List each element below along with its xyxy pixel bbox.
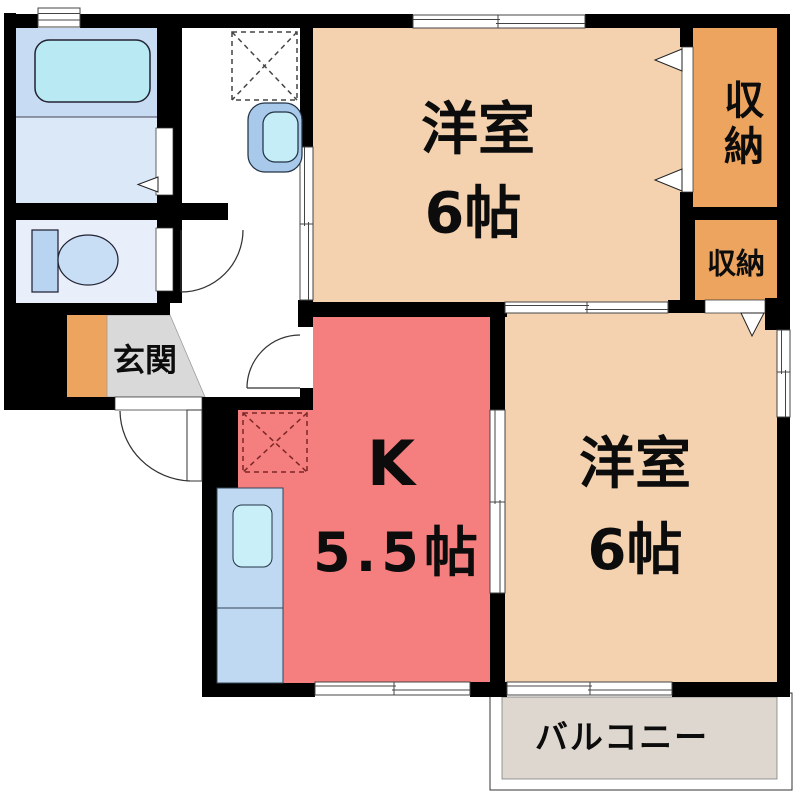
- wall-kitchen-corner-block: [217, 410, 238, 488]
- entrance-step: [115, 397, 202, 410]
- wall-kitchen-room2-a: [490, 313, 505, 410]
- bathtub-icon: [35, 40, 150, 102]
- wall-hall-east-mid: [298, 300, 313, 327]
- wall-hall-east-lower: [300, 388, 313, 410]
- floorplan: 洋室 6帖 洋室 6帖 K 5.5帖 収納 収納 玄関 バルコニー: [0, 0, 800, 800]
- wall-top-b: [80, 14, 413, 28]
- western-room-2-label: 洋室: [579, 437, 691, 493]
- hall-room1-sliding-door: [300, 147, 313, 300]
- washroom-floor: [16, 117, 157, 203]
- storage-lower-label: 収納: [707, 250, 765, 279]
- room2-right-window: [777, 330, 790, 417]
- wall-washroom-bottom: [16, 203, 228, 220]
- wall-entrance-left-block: [16, 303, 67, 410]
- wall-toilet-bottom: [67, 303, 170, 315]
- wall-kitchen-top: [313, 302, 507, 317]
- entrance-door: [115, 397, 202, 481]
- wall-right-corner-block: [765, 298, 790, 330]
- wall-entrance-bottom-b: [202, 397, 313, 410]
- wall-kitchen-left: [202, 410, 217, 697]
- wall-top-a: [16, 14, 38, 28]
- wall-kitchen-room2-b: [490, 593, 505, 683]
- kitchen-sink-icon: [233, 505, 272, 567]
- western-room-1-floor: [313, 28, 682, 302]
- balcony-label: バルコニー: [535, 721, 709, 754]
- vanity-sink-icon: [248, 103, 302, 172]
- wall-kitchen-bottom-b: [470, 682, 507, 697]
- wall-left: [4, 13, 16, 410]
- wall-storage-west-a: [680, 28, 693, 47]
- toilet-door-arc: [181, 230, 243, 292]
- western-room-2-size: 6帖: [588, 523, 683, 579]
- washing-machine-space-icon: [232, 32, 297, 100]
- entrance-door-arc: [120, 411, 190, 481]
- hall-kitchen-door-arc: [247, 335, 300, 388]
- entrance-door-leaf: [187, 410, 202, 481]
- room2-bottom-window: [507, 682, 672, 695]
- floorplan-drawing: [0, 0, 800, 800]
- hall-kitchen-door: [247, 327, 313, 388]
- entrance-label: 玄関: [113, 344, 177, 376]
- kitchen-bottom-window: [315, 682, 470, 695]
- room1-room2-sliding-door: [505, 302, 668, 313]
- entrance-mat: [67, 315, 107, 397]
- wall-room-boundary: [668, 300, 707, 313]
- kitchen-room2-sliding-door: [490, 410, 505, 593]
- wall-right-upper: [777, 14, 790, 330]
- kitchen-counter-icon: [217, 488, 283, 683]
- kitchen-label: K: [367, 433, 415, 495]
- western-room-1-size: 6帖: [425, 186, 522, 243]
- wall-bottom-b: [672, 682, 790, 697]
- bath-window: [38, 8, 80, 27]
- western-room-2-floor: [505, 313, 777, 683]
- wall-storage-west-c: [680, 220, 695, 300]
- toilet-door: [156, 228, 243, 292]
- kitchen-size: 5.5帖: [313, 526, 483, 580]
- room1-top-window: [413, 15, 585, 28]
- wall-storage-divider: [680, 207, 790, 220]
- wall-top-c: [585, 14, 790, 28]
- wall-kitchen-bottom-a: [202, 683, 315, 697]
- western-room-1-label: 洋室: [421, 102, 535, 159]
- wall-right-lower: [777, 417, 790, 697]
- storage-upper-label: 収納: [720, 79, 760, 171]
